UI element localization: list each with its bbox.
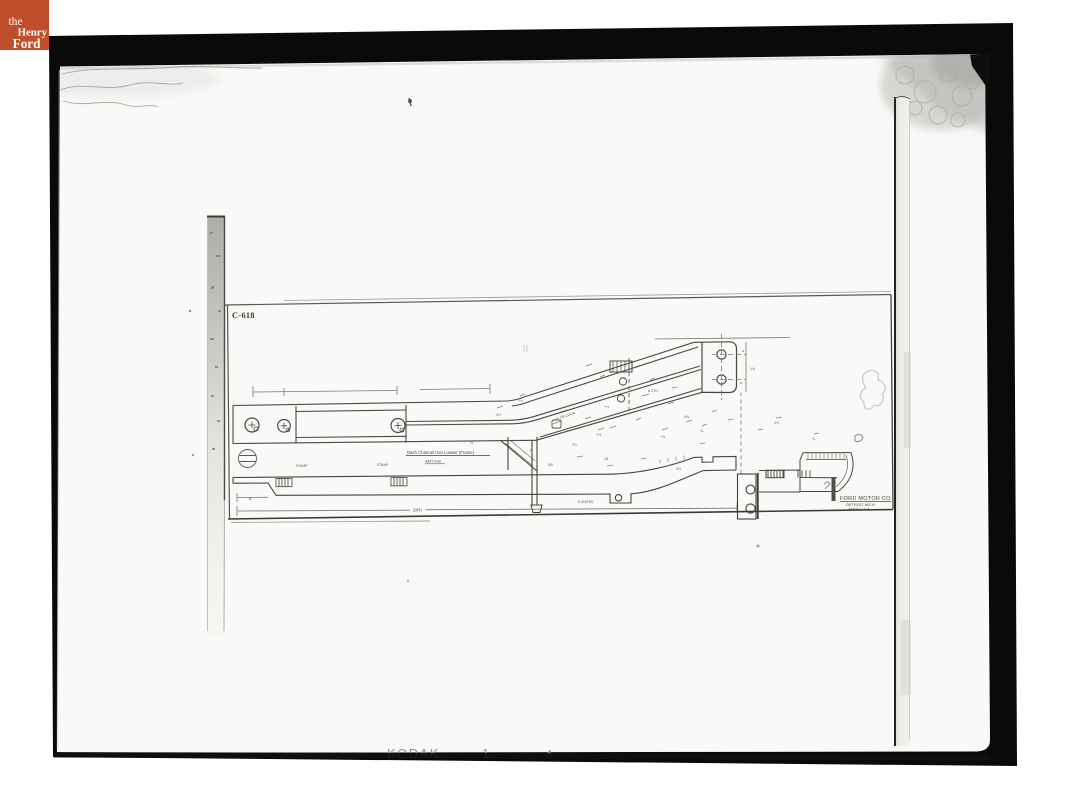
svg-text:4347 Iron: 4347 Iron [425,460,441,464]
svg-text:+½: +½ [596,433,601,437]
svg-text:8 UNITED: 8 UNITED [578,500,594,504]
svg-text:STAMP: STAMP [377,463,389,467]
svg-text:DETROIT MICH: DETROIT MICH [846,502,875,507]
svg-text:STAMP: STAMP [296,464,308,468]
svg-text:Dash Channel Iron Lowset (Fram: Dash Channel Iron Lowset (Frame) [407,450,475,455]
svg-text:24½: 24½ [413,507,422,514]
svg-text:½: ½ [470,441,473,445]
svg-text:4½: 4½ [676,467,681,471]
svg-text:5⁄8: 5⁄8 [548,463,553,467]
svg-text:Ford: Ford [13,36,42,51]
svg-text:4½: 4½ [496,413,501,417]
svg-text:4½: 4½ [684,415,689,419]
svg-text:MADE U.S.A.: MADE U.S.A. [849,508,871,512]
svg-text:R: R [530,449,533,453]
svg-text:4½: 4½ [774,421,779,425]
svg-text:18: 18 [604,457,608,461]
svg-text:C-618: C-618 [232,311,255,320]
svg-text:8 3TD: 8 3TD [648,389,658,393]
